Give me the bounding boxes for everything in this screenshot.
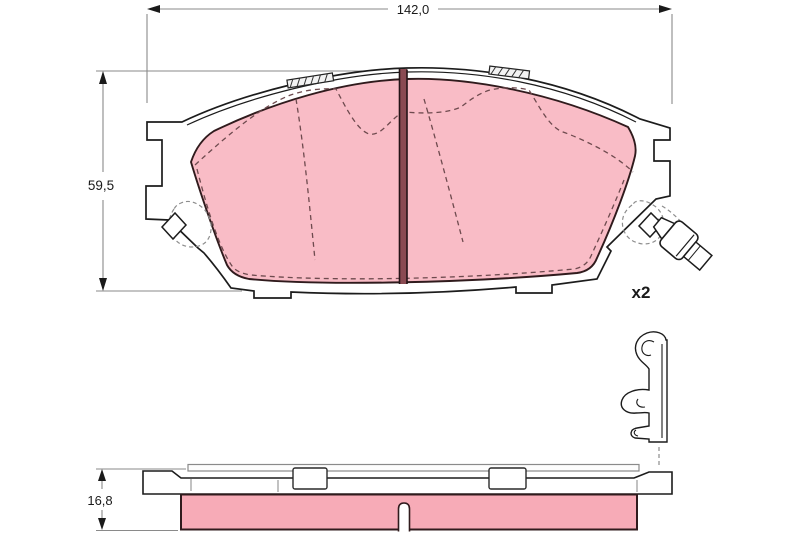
- clip-profile-view: [621, 332, 667, 468]
- clip-profile-outline: [621, 332, 667, 442]
- technical-drawing-canvas: 142,0 59,5: [0, 0, 800, 533]
- friction-strip-slot-notch: [399, 503, 410, 532]
- front-view: [146, 66, 716, 298]
- dimension-width-label: 142,0: [397, 2, 430, 17]
- dimension-thickness-label: 16,8: [87, 493, 112, 508]
- edge-view: [143, 465, 672, 532]
- dimension-height-label: 59,5: [88, 178, 114, 193]
- arrow-left-icon: [147, 5, 160, 13]
- shim-edge: [188, 465, 639, 472]
- arrow-right-icon: [659, 5, 672, 13]
- brake-pad-drawing: 142,0 59,5: [0, 0, 800, 533]
- arrow-down-icon: [98, 518, 106, 530]
- arrow-up-icon: [99, 71, 107, 84]
- clip-right-edge: [489, 468, 526, 489]
- backplate-edge: [143, 471, 672, 494]
- arrow-down-icon: [99, 278, 107, 291]
- center-slot: [400, 69, 408, 284]
- arrow-up-icon: [98, 469, 106, 481]
- center-slot-groove: [400, 69, 408, 284]
- quantity-label: x2: [632, 283, 651, 302]
- clip-left-edge: [293, 468, 327, 489]
